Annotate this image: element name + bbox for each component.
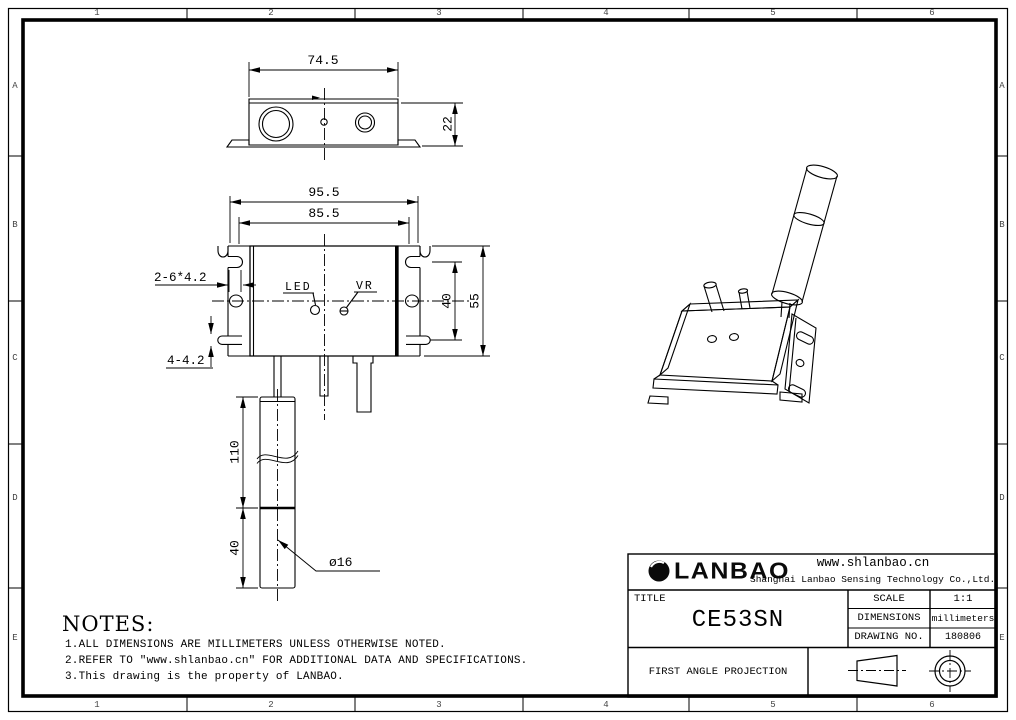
dim-body-width: 85.5 bbox=[308, 206, 339, 221]
sensor-barrel-view bbox=[236, 389, 380, 601]
label-bottom-slots: 4-4.2 bbox=[167, 354, 205, 368]
zone-row-b2: B bbox=[995, 219, 1009, 231]
zone-row-e: E bbox=[8, 632, 22, 644]
zone-col-4: 4 bbox=[599, 7, 613, 19]
dim-head-length: 40 bbox=[228, 540, 243, 556]
company-name: Shanghai Lanbao Sensing Technology Co.,L… bbox=[750, 574, 994, 585]
dim-top-height: 22 bbox=[441, 116, 456, 132]
label-led: LED bbox=[285, 281, 312, 294]
projection-label: FIRST ANGLE PROJECTION bbox=[628, 666, 808, 678]
label-vr: VR bbox=[356, 280, 374, 293]
zone-col-6b: 6 bbox=[925, 699, 939, 711]
zone-col-4b: 4 bbox=[599, 699, 613, 711]
zone-row-a: A bbox=[8, 80, 22, 92]
note-3: 3.This drawing is the property of LANBAO… bbox=[65, 669, 344, 685]
top-view bbox=[227, 62, 463, 160]
dim-body-height: 55 bbox=[468, 293, 483, 309]
zone-col-1b: 1 bbox=[90, 699, 104, 711]
dim-slot-spacing: 40 bbox=[440, 293, 455, 309]
dim-cable-length: 110 bbox=[228, 440, 243, 463]
zone-row-b: B bbox=[8, 219, 22, 231]
zone-row-a2: A bbox=[995, 80, 1009, 92]
zone-col-3: 3 bbox=[432, 7, 446, 19]
zone-col-5b: 5 bbox=[766, 699, 780, 711]
scale-value: 1:1 bbox=[930, 593, 996, 605]
part-number: CE53SN bbox=[648, 607, 828, 634]
frame-border bbox=[8, 8, 1008, 712]
dimensions-value: millimeters bbox=[930, 613, 996, 624]
drawing-no-value: 180806 bbox=[930, 632, 996, 643]
label-side-slots: 2-6*4.2 bbox=[154, 271, 207, 285]
zone-col-2b: 2 bbox=[264, 699, 278, 711]
scale-label: SCALE bbox=[848, 593, 930, 605]
zone-col-6: 6 bbox=[925, 7, 939, 19]
notes-heading: NOTES: bbox=[62, 612, 154, 636]
zone-col-5: 5 bbox=[766, 7, 780, 19]
note-2: 2.REFER TO ″www.shlanbao.cn″ FOR ADDITIO… bbox=[65, 653, 527, 669]
zone-row-d2: D bbox=[995, 492, 1009, 504]
website: www.shlanbao.cn bbox=[768, 556, 978, 570]
zone-row-d: D bbox=[8, 492, 22, 504]
drawing-sheet: 74.5 22 bbox=[0, 0, 1016, 720]
dim-overall-width: 95.5 bbox=[308, 185, 339, 200]
zone-row-c: C bbox=[8, 352, 22, 364]
lanbao-logo-icon bbox=[649, 561, 670, 582]
dim-top-width: 74.5 bbox=[307, 53, 338, 68]
note-1: 1.ALL DIMENSIONS ARE MILLIMETERS UNLESS … bbox=[65, 637, 446, 653]
dim-diameter: ø16 bbox=[329, 555, 352, 570]
projection-symbol-icon bbox=[848, 650, 971, 692]
zone-row-c2: C bbox=[995, 352, 1009, 364]
zone-col-2: 2 bbox=[264, 7, 278, 19]
drawing-no-label: DRAWING NO. bbox=[848, 631, 930, 643]
isometric-view bbox=[648, 162, 839, 404]
zone-col-3b: 3 bbox=[432, 699, 446, 711]
dimensions-label: DIMENSIONS bbox=[848, 612, 930, 624]
zone-row-e2: E bbox=[995, 632, 1009, 644]
zone-col-1: 1 bbox=[90, 7, 104, 19]
title-label: TITLE bbox=[634, 593, 666, 605]
